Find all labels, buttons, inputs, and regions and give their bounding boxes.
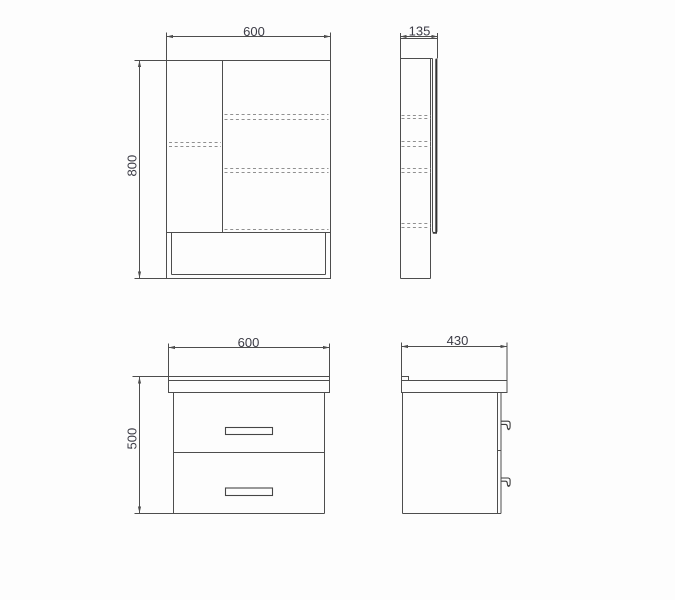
svg-text:430: 430 xyxy=(447,333,469,348)
svg-text:135: 135 xyxy=(409,23,431,38)
svg-text:800: 800 xyxy=(125,155,140,177)
svg-text:600: 600 xyxy=(243,24,265,39)
svg-text:500: 500 xyxy=(125,428,140,450)
svg-text:600: 600 xyxy=(238,335,260,350)
